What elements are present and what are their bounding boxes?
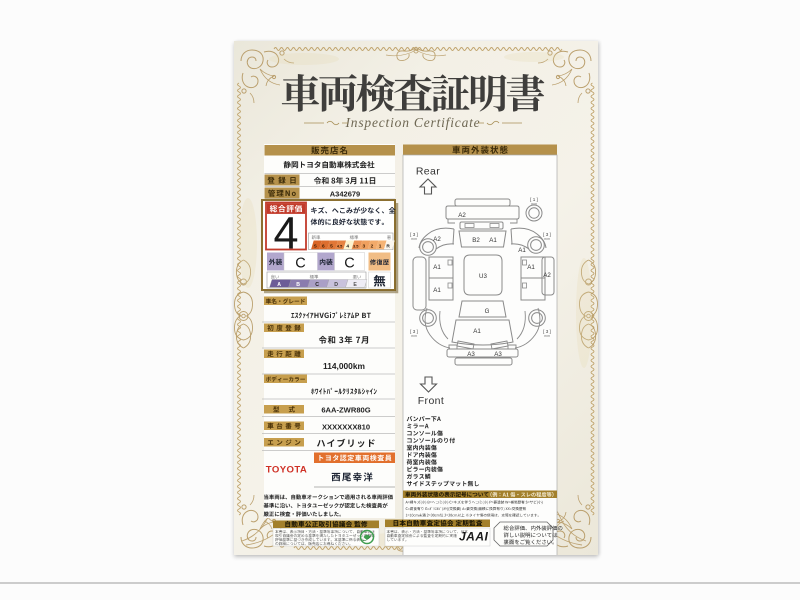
svg-text:C: C xyxy=(344,256,354,272)
svg-text:6AA-ZWR80G: 6AA-ZWR80G xyxy=(321,406,370,415)
svg-text:[ 1 ]: [ 1 ] xyxy=(530,197,538,202)
svg-text:[ 3 ]: [ 3 ] xyxy=(410,232,418,237)
svg-text:A3: A3 xyxy=(467,351,475,358)
svg-text:4: 4 xyxy=(273,208,298,259)
svg-text:A2: A2 xyxy=(433,236,441,243)
svg-text:R: R xyxy=(386,244,390,250)
svg-text:A1: A1 xyxy=(433,287,441,294)
svg-text:A2: A2 xyxy=(543,272,551,279)
svg-text:E: E xyxy=(353,282,357,288)
svg-text:4.5: 4.5 xyxy=(337,244,343,249)
svg-text:B2: B2 xyxy=(472,237,480,244)
svg-text:A3: A3 xyxy=(494,351,502,358)
svg-text:A2: A2 xyxy=(458,212,466,219)
svg-text:Inspection Certificate: Inspection Certificate xyxy=(345,115,481,130)
svg-text:U3: U3 xyxy=(479,273,487,280)
svg-text:A1: A1 xyxy=(527,264,535,271)
svg-text:TOYOTA: TOYOTA xyxy=(266,465,308,476)
svg-text:1: 1 xyxy=(379,244,382,250)
svg-text:C: C xyxy=(295,256,305,272)
svg-text:114,000km: 114,000km xyxy=(323,361,365,371)
svg-text:XXXXXXX810: XXXXXXX810 xyxy=(322,423,370,432)
svg-text:JAAI: JAAI xyxy=(459,530,489,544)
svg-text:4: 4 xyxy=(346,244,349,250)
svg-text:[ 3 ]: [ 3 ] xyxy=(410,329,418,334)
svg-text:A342679: A342679 xyxy=(330,190,360,199)
svg-text:3.5: 3.5 xyxy=(353,244,359,249)
svg-text:2: 2 xyxy=(371,244,374,250)
svg-text:A: A xyxy=(277,282,281,288)
svg-text:5: 5 xyxy=(330,244,333,250)
svg-text:3: 3 xyxy=(363,244,366,250)
svg-text:[ 3 ]: [ 3 ] xyxy=(543,329,551,334)
svg-text:A1: A1 xyxy=(473,328,481,335)
svg-text:B: B xyxy=(296,282,300,288)
svg-text:[ 3 ]: [ 3 ] xyxy=(543,232,551,237)
svg-text:A1: A1 xyxy=(433,264,441,271)
svg-text:Front: Front xyxy=(418,395,445,407)
svg-text:Rear: Rear xyxy=(416,166,440,178)
svg-text:6: 6 xyxy=(322,244,325,250)
svg-text:D: D xyxy=(334,282,338,288)
svg-text:G: G xyxy=(485,308,490,315)
svg-text:A1: A1 xyxy=(489,237,497,244)
svg-text:C: C xyxy=(315,282,319,288)
svg-text:A1: A1 xyxy=(518,247,526,254)
